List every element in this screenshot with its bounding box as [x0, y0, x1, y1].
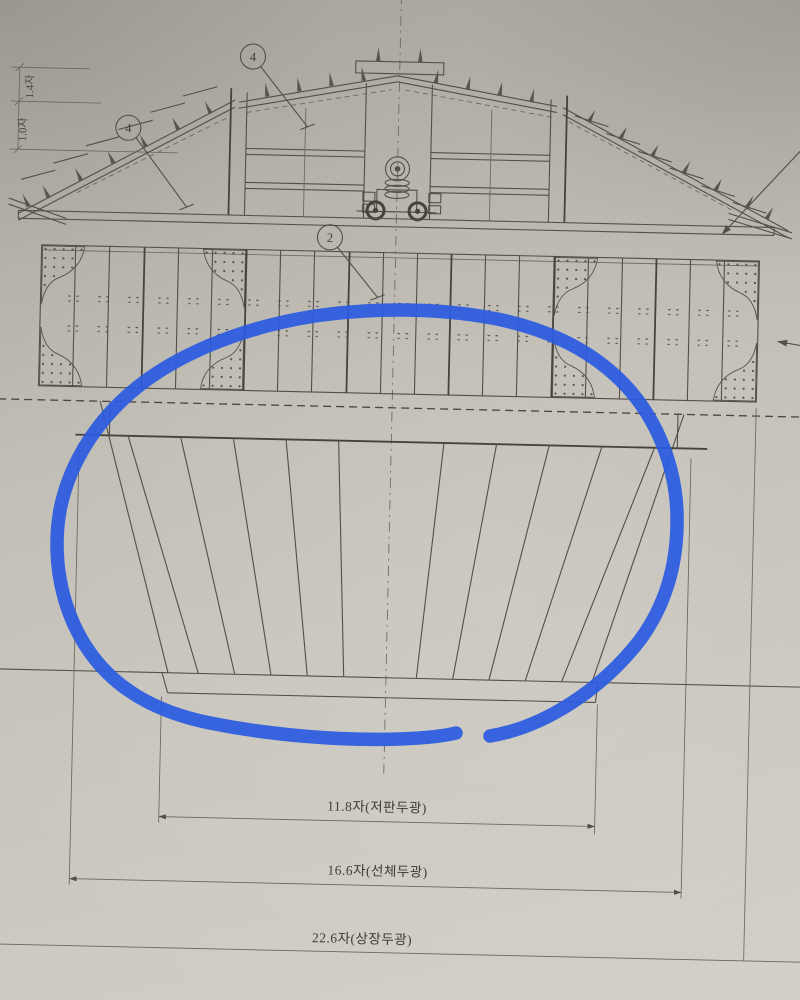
- callout-4-left-number: 4: [125, 121, 132, 135]
- blueprint-photo: 1.4자 1.0자: [0, 0, 800, 1000]
- dimension-bottom-plank: 11.8자(저판두광): [159, 695, 598, 835]
- roof-spikes-left: [20, 96, 213, 212]
- center-line: [384, 0, 402, 776]
- callout-4-top: 4: [239, 44, 316, 130]
- right-roof-slope: [560, 108, 795, 239]
- callout-4-top-number: 4: [250, 50, 257, 64]
- height-dim-lower: 1.0자: [16, 117, 30, 141]
- roof-spikes-right: [584, 109, 777, 221]
- callout-4-left: 4: [114, 115, 196, 210]
- left-roof-slope: [8, 82, 235, 228]
- dim-label-upper-structure: 22.6자(상장두광): [312, 930, 413, 947]
- cannon: [356, 156, 441, 220]
- dimension-hull: 16.6자(선체두광): [69, 443, 691, 899]
- callout-2-band: 2: [316, 225, 386, 301]
- dim-label-hull: 16.6자(선체두광): [327, 862, 428, 879]
- dim-label-bottom-plank: 11.8자(저판두광): [327, 798, 427, 815]
- hull-plank-fan: [70, 401, 708, 685]
- nail-dots-row: [52, 325, 748, 347]
- height-dim-upper: 1.4자: [23, 74, 37, 98]
- callout-2-band-number: 2: [327, 231, 334, 245]
